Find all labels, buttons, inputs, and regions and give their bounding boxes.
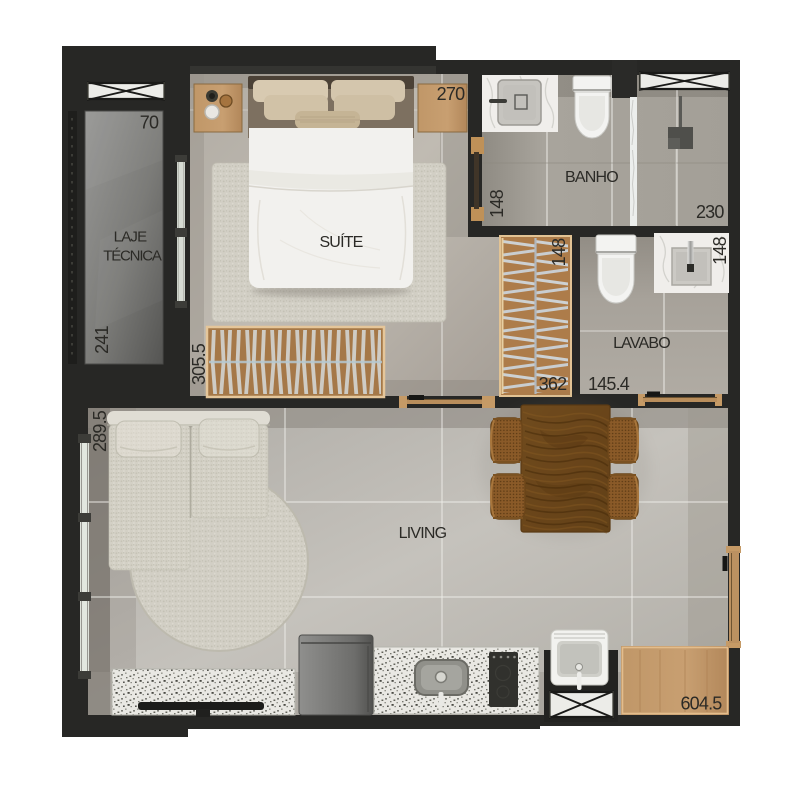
svg-text:148: 148 <box>487 189 507 217</box>
svg-text:270: 270 <box>437 84 465 104</box>
svg-text:362: 362 <box>539 374 567 394</box>
svg-text:305.5: 305.5 <box>189 343 209 385</box>
svg-text:145.4: 145.4 <box>588 374 630 394</box>
svg-text:TÉCNICA: TÉCNICA <box>103 248 162 265</box>
svg-text:70: 70 <box>140 113 159 133</box>
svg-text:LAVABO: LAVABO <box>613 335 670 352</box>
svg-text:LIVING: LIVING <box>399 525 447 542</box>
svg-text:148: 148 <box>710 236 730 264</box>
svg-text:148: 148 <box>549 238 569 266</box>
svg-text:604.5: 604.5 <box>680 694 722 714</box>
svg-text:SUÍTE: SUÍTE <box>319 232 362 251</box>
svg-text:289.5: 289.5 <box>90 410 110 452</box>
svg-text:230: 230 <box>696 202 724 222</box>
svg-text:241: 241 <box>92 325 112 353</box>
svg-text:LAJE: LAJE <box>114 229 147 246</box>
svg-text:BANHO: BANHO <box>565 169 618 186</box>
